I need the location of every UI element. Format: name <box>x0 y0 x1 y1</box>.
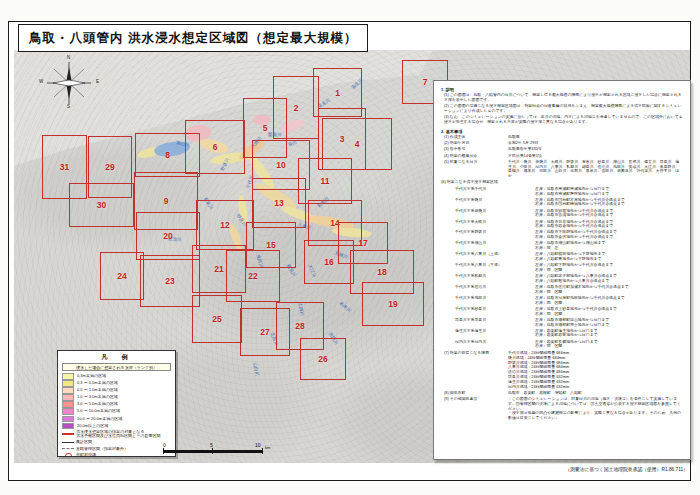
notes-row-label: (3) 告示番号 <box>444 147 508 152</box>
compass-n-label: N <box>67 55 70 60</box>
zone-row: 千代川水系八東川（下流）左岸：八頭町下野地先から千代川合流点まで 右岸：同 区間 <box>455 263 683 273</box>
zone-river-name: 塩見川水系塩見川 <box>455 318 535 328</box>
zone-extent: 左岸：鳥取市湖山町地先から湖山池まで 右岸：同 左 <box>535 241 683 251</box>
scale-bar-line <box>163 450 263 453</box>
page-title: 鳥取・八頭管内 洪水浸水想定区域図（想定最大規模） <box>29 31 357 45</box>
depth-color-chip <box>62 373 74 380</box>
compass-w-label: W <box>39 79 43 84</box>
notes-basic-rows: (1) 作成主体鳥取県(2) 指定年月日令和2年 5月 29日(3) 告示番号鳥… <box>441 135 683 179</box>
legend-subtitle: 浸水した場合に想定される水深（ランク別） <box>62 363 171 371</box>
zone-row: 塩見川水系塩見川左岸：鳥取市福部町湯山地先から河口まで 右岸：鳥取市福部町海士地… <box>455 318 683 328</box>
depth-color-chip <box>62 394 74 401</box>
zone-row: 千代川水系湖山川左岸：鳥取市湖山町地先から湖山池まで 右岸：同 左 <box>455 241 683 251</box>
zone-river-name: 千代川水系新袋川 <box>455 209 535 219</box>
zone-row: 千代川水系曳田川左岸：鳥取市河原町曳田地先から千代川合流点まで 右岸：同 区間 <box>455 296 683 306</box>
survey-credit: （測量法に基づく国土地理院長承認（使用）R1.86.711） <box>565 466 688 472</box>
legend-depth-row: 3.0 〜 5.0m未満の区域 <box>62 401 171 408</box>
tickline-symbol-icon <box>62 439 74 445</box>
depth-color-chip <box>62 416 74 423</box>
notes-row-value: 鳥取県 <box>508 135 683 140</box>
zone-extent: 左岸：鳥取市福部町湯山地先から河口まで 右岸：鳥取市福部町海士地先から河口まで <box>535 318 683 328</box>
zone-row: 千代川水系佐治川左岸：鳥取市佐治町加瀬木地先から千代川合流点まで 右岸：同 区間 <box>455 285 683 295</box>
zone-extent: 左岸：鳥取市卯垣地先から千代川合流点まで 右岸：鳥取市吉成地先から千代川合流点ま… <box>535 209 683 219</box>
notes-section2-title: 2. 基本事項 <box>441 129 683 134</box>
zone-river-name: 千代川水系袋川 <box>455 198 535 208</box>
notes-row: (4) 指定の根拠法令水防法第14条第1項 <box>444 154 683 159</box>
legend-row-label: 3.0 〜 5.0m未満の区域 <box>77 402 118 406</box>
legend-row-label: 10.0 〜 20.0m未満の区域 <box>77 417 122 421</box>
notes-row-value: 鳥取市、岩美町、若桜町、智頭町、八頭町 <box>508 391 683 396</box>
notes-extra-rows: (7) 指定の前提となる降雨千代川流域：24時間総雨量 684mm 袋川流域：2… <box>441 351 683 421</box>
notes-item: (3) なお、このシミュレーションの実施に当たっては、支川の氾濫、内水による氾濫… <box>444 115 683 125</box>
notes-row-label: (7) 指定の前提となる降雨 <box>444 351 508 389</box>
zone-river-name: 千代川水系大路川 <box>455 220 535 230</box>
zone-extent: 左岸：八頭町志子部地先から八東川合流点まで 右岸：八頭町殿地先から八東川合流点ま… <box>535 274 683 284</box>
zone-row: 千代川水系八東川（上流）左岸：八頭町横田地先から下野地先まで 右岸：八頭町東地先… <box>455 252 683 262</box>
legend-row-label: 20.0m以上の区域 <box>77 424 108 428</box>
legend-symbol-rows: 洪水浸水想定区域の指定の対象となる 洪水予報区間及び水位周知区間とその影響区間集… <box>62 430 171 457</box>
notes-row: (5) 対象となる河川千代川、袋川、新袋川、大路川、野坂川、有富川、砂見川、湖山… <box>444 160 683 179</box>
depth-color-chip <box>62 423 74 430</box>
notes-zone-list: 千代川水系千代川左岸：鳥取市用瀬町用瀬地先から河口まで 右岸：鳥取市用瀬町鷹狩地… <box>455 187 683 349</box>
notes-row: (7) 指定の前提となる降雨千代川流域：24時間総雨量 684mm 袋川流域：2… <box>444 351 683 389</box>
zone-row: 河内川水系河内川左岸：岩美町長郷地先から河口まで 右岸：同 区間 <box>455 340 683 350</box>
compass-e-label: E <box>96 79 99 84</box>
map-sheet-page: 千代川袋川新袋川大路川野坂川湖山川塩見川蒲生川八東川私都川佐治川曳田川細見川大江… <box>0 0 700 495</box>
zone-row: 千代川水系野坂川左岸：鳥取市下味野地先から千代川合流点まで 右岸：鳥取市金沢地先… <box>455 230 683 240</box>
zone-extent: 左岸：鳥取市国府町木原地先から千代川合流点まで 右岸：鳥取市国府町楠城地先から千… <box>535 198 683 208</box>
scale-bar: 0 5 10 km <box>163 442 273 458</box>
compass-s-label: S <box>67 104 70 109</box>
map-title-box: 鳥取・八頭管内 洪水浸水想定区域図（想定最大規模） <box>18 24 368 52</box>
legend-symbol-row: 集計区間 <box>62 439 171 445</box>
zone-river-name: 千代川水系私都川 <box>455 274 535 284</box>
notes-row: (3) 告示番号鳥取県告示第335号 <box>444 147 683 152</box>
notes-row: (9) その他関係事項・この図面のシミュレーションは、対象河川の氾濫（越水・決壊… <box>444 397 683 421</box>
notes-row-value: 千代川流域：24時間総雨量 684mm 袋川流域：24時間総雨量 684mm 野… <box>508 351 683 389</box>
legend-depth-rows: 0.3m未満の区域0.3 〜 0.5m未満の区域0.5 〜 1.0m未満の区域1… <box>62 373 171 429</box>
notes-row: (1) 作成主体鳥取県 <box>444 135 683 140</box>
notes-row-label: (4) 指定の根拠法令 <box>444 154 508 159</box>
legend-depth-row: 1.0 〜 3.0m未満の区域 <box>62 394 171 401</box>
zone-row: 千代川水系砂見川左岸：鳥取市上砂見地先から千代川合流点まで 右岸：同 区間 <box>455 307 683 317</box>
zone-extent: 左岸：岩美町蒲生地先から河口まで 右岸：岩美町岩常地先から河口まで <box>535 329 683 339</box>
legend-depth-row: 0.3m未満の区域 <box>62 373 171 380</box>
notes-item: (2) この図面の基礎となる浸水想定区域図は、指定時点の河道整備の状況をふまえ、… <box>444 104 683 114</box>
zone-river-name: 千代川水系佐治川 <box>455 285 535 295</box>
zone-river-name: 千代川水系八東川（上流） <box>455 252 535 262</box>
depth-color-chip <box>62 408 74 415</box>
legend-symbol-row: 直轄管理区間（指定対象外） <box>62 446 171 452</box>
legend-symbol-row: 洪水浸水想定区域の指定の対象となる 洪水予報区間及び水位周知区間とその影響区間 <box>62 430 171 439</box>
notes-row-value: 水防法第14条第1項 <box>508 154 683 159</box>
notes-row-value: 鳥取県告示第335号 <box>508 147 683 152</box>
notes-row-value: 令和2年 5月 29日 <box>508 141 683 146</box>
zone-extent: 左岸：八頭町横田地先から下野地先まで 右岸：八頭町東地先から下野地先まで <box>535 252 683 262</box>
notes-row-label: (1) 作成主体 <box>444 135 508 140</box>
zone-extent: 左岸：岩美町長郷地先から河口まで 右岸：同 区間 <box>535 340 683 350</box>
depth-color-chip <box>62 387 74 394</box>
scale-bar-labels: 0 5 10 km <box>163 442 273 448</box>
zone-extent: 左岸：鳥取市百谷地先から千代川合流点まで 右岸：鳥取市岩倉地先から千代川合流点ま… <box>535 220 683 230</box>
notes-row-value: ・この図面のシミュレーションは、対象河川の氾濫（越水・決壊等）を条件として実施し… <box>508 397 683 421</box>
depth-color-chip <box>62 401 74 408</box>
scale-tick-10: 10 <box>255 442 261 448</box>
zone-river-name: 千代川水系湖山川 <box>455 241 535 251</box>
redline-symbol-icon <box>62 431 74 437</box>
zone-row: 千代川水系千代川左岸：鳥取市用瀬町用瀬地先から河口まで 右岸：鳥取市用瀬町鷹狩地… <box>455 187 683 197</box>
legend-box: 凡 例 浸水した場合に想定される水深（ランク別） 0.3m未満の区域0.3 〜 … <box>57 350 176 457</box>
dashline-symbol-icon <box>62 446 74 452</box>
zone-extent: 左岸：鳥取市用瀬町用瀬地先から河口まで 右岸：鳥取市用瀬町鷹狩地先から河口まで <box>535 187 683 197</box>
legend-depth-row: 5.0 〜 10.0m未満の区域 <box>62 408 171 415</box>
zone-river-name: 千代川水系野坂川 <box>455 230 535 240</box>
notes-zones-label: (6) 指定となる洪水浸水想定区域 <box>441 180 683 185</box>
notes-row-label: (5) 対象となる河川 <box>444 160 508 179</box>
legend-depth-row: 0.3 〜 0.5m未満の区域 <box>62 380 171 387</box>
zone-row: 蒲生川水系蒲生川左岸：岩美町蒲生地先から河口まで 右岸：岩美町岩常地先から河口ま… <box>455 329 683 339</box>
scale-unit-label: km <box>265 445 270 450</box>
notes-item: (1) この図面は、鳥取・八頭管内の河川について、想定し得る最大規模の降雨により… <box>444 93 683 103</box>
legend-row-label: 0.3m未満の区域 <box>77 374 106 378</box>
zone-river-name: 千代川水系千代川 <box>455 187 535 197</box>
compass-rose: N E S W <box>40 56 98 110</box>
legend-depth-row: 0.5 〜 1.0m未満の区域 <box>62 387 171 394</box>
notes-panel: 1. 説明 (1) この図面は、鳥取・八頭管内の河川について、想定し得る最大規模… <box>433 80 691 460</box>
depth-color-chip <box>62 380 74 387</box>
zone-extent: 左岸：鳥取市佐治町加瀬木地先から千代川合流点まで 右岸：同 区間 <box>535 285 683 295</box>
zone-row: 千代川水系大路川左岸：鳥取市百谷地先から千代川合流点まで 右岸：鳥取市岩倉地先か… <box>455 220 683 230</box>
zone-extent: 左岸：八頭町下野地先から千代川合流点まで 右岸：同 区間 <box>535 263 683 273</box>
legend-row-label: 洪水浸水想定区域の指定の対象となる 洪水予報区間及び水位周知区間とその影響区間 <box>76 430 160 439</box>
legend-row-label: 集計区間 <box>76 440 92 444</box>
legend-row-label: 市町村役場 <box>76 453 96 457</box>
compass-star-icon <box>46 61 92 105</box>
legend-row-label: 5.0 〜 10.0m未満の区域 <box>77 409 120 413</box>
zone-river-name: 蒲生川水系蒲生川 <box>455 329 535 339</box>
legend-row-label: 0.3 〜 0.5m未満の区域 <box>77 381 118 385</box>
notes-row-label: (2) 指定年月日 <box>444 141 508 146</box>
legend-symbol-row: 市町村役場 <box>62 452 171 457</box>
notes-row-value: 千代川、袋川、新袋川、大路川、野坂川、有富川、砂見川、湖山川、長柄川、倭文川、塩… <box>508 160 683 179</box>
legend-row-label: 0.5 〜 1.0m未満の区域 <box>77 388 118 392</box>
notes-row-label: (9) その他関係事項 <box>444 397 508 421</box>
zone-river-name: 千代川水系曳田川 <box>455 296 535 306</box>
zone-row: 千代川水系袋川左岸：鳥取市国府町木原地先から千代川合流点まで 右岸：鳥取市国府町… <box>455 198 683 208</box>
notes-row-label: (8) 関係市町 <box>444 391 508 396</box>
legend-title: 凡 例 <box>62 353 171 362</box>
zone-river-name: 千代川水系砂見川 <box>455 307 535 317</box>
legend-row-label: 1.0 〜 3.0m未満の区域 <box>77 395 118 399</box>
notes-row: (2) 指定年月日令和2年 5月 29日 <box>444 141 683 146</box>
legend-row-label: 直轄管理区間（指定対象外） <box>76 447 128 451</box>
zone-row: 千代川水系新袋川左岸：鳥取市卯垣地先から千代川合流点まで 右岸：鳥取市吉成地先か… <box>455 209 683 219</box>
zone-river-name: 千代川水系八東川（下流） <box>455 263 535 273</box>
notes-section1-items: (1) この図面は、鳥取・八頭管内の河川について、想定し得る最大規模の降雨により… <box>444 93 683 125</box>
legend-depth-row: 10.0 〜 20.0m未満の区域 <box>62 416 171 423</box>
circle-symbol-icon <box>62 452 74 457</box>
zone-row: 千代川水系私都川左岸：八頭町志子部地先から八東川合流点まで 右岸：八頭町殿地先か… <box>455 274 683 284</box>
zone-extent: 左岸：鳥取市河原町曳田地先から千代川合流点まで 右岸：同 区間 <box>535 296 683 306</box>
zone-extent: 左岸：鳥取市下味野地先から千代川合流点まで 右岸：鳥取市金沢地先から千代川合流点… <box>535 230 683 240</box>
zone-river-name: 河内川水系河内川 <box>455 340 535 350</box>
notes-row: (8) 関係市町鳥取市、岩美町、若桜町、智頭町、八頭町 <box>444 391 683 396</box>
zone-extent: 左岸：鳥取市上砂見地先から千代川合流点まで 右岸：同 区間 <box>535 307 683 317</box>
